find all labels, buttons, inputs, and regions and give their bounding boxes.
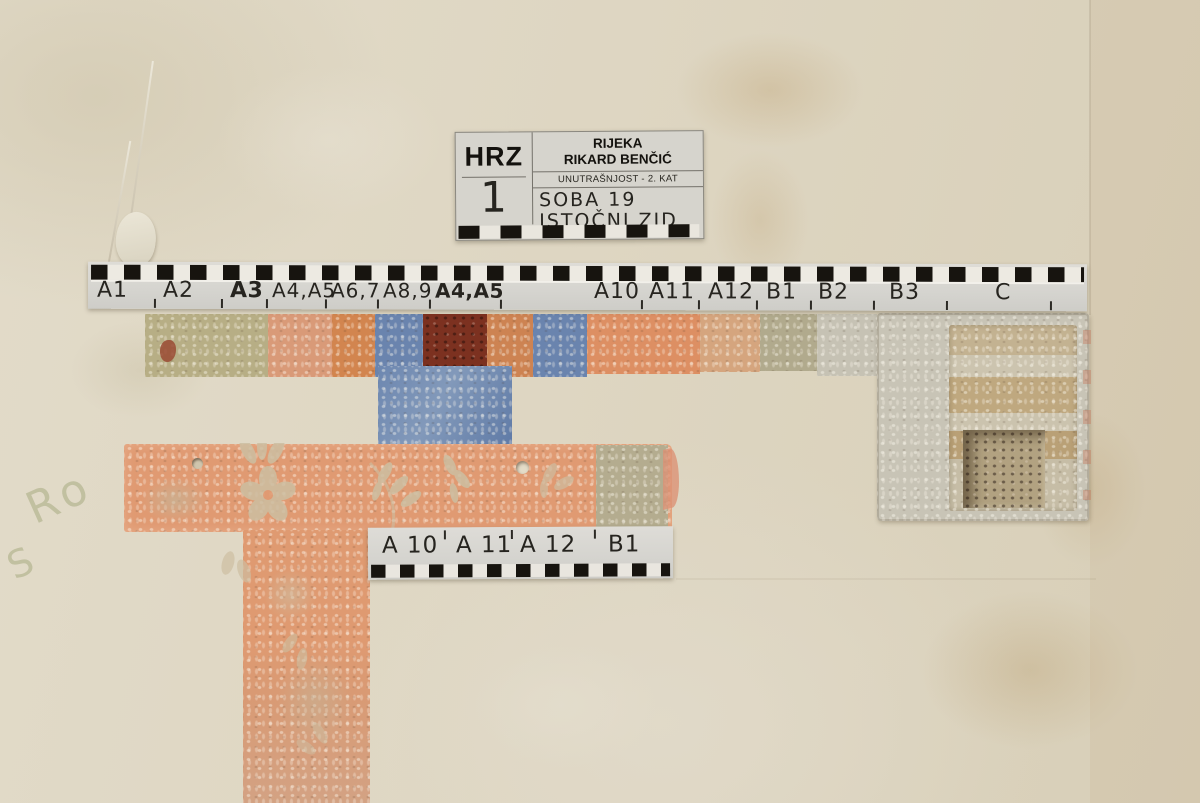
sample-patch-blue-2 bbox=[533, 314, 587, 377]
sample-patch-blue-large bbox=[378, 366, 512, 448]
scale-label-a4a5-bold: A4,A5 bbox=[435, 279, 504, 303]
nail-hole bbox=[192, 458, 203, 469]
lower-label-a10: A 10 bbox=[382, 532, 438, 558]
lower-scale-bar: A 10 A 11 A 12 B1 bbox=[368, 526, 673, 580]
tick-mark bbox=[810, 301, 812, 310]
scale-label-a3: A3 bbox=[230, 278, 263, 303]
wallpaper-band-grey-end bbox=[596, 445, 668, 531]
tick-mark bbox=[698, 300, 700, 309]
site-name: RIJEKA bbox=[533, 135, 703, 152]
tick-mark bbox=[266, 299, 268, 308]
card-scale-checker bbox=[458, 224, 699, 239]
tick-mark bbox=[641, 300, 643, 309]
tick-mark bbox=[444, 530, 446, 539]
scale-label-a11: A11 bbox=[649, 279, 695, 304]
lower-label-a11: A 11 bbox=[456, 532, 512, 558]
label-card: HRZ 1 RIJEKA RIKARD BENČIĆ UNUTRAŠNJOST … bbox=[455, 130, 705, 241]
building-name: RIKARD BENČIĆ bbox=[533, 151, 703, 168]
plaster-seam bbox=[1090, 0, 1200, 803]
tick-mark bbox=[221, 299, 223, 308]
tick-mark bbox=[154, 299, 156, 308]
plaster-pink-fleck bbox=[1083, 330, 1091, 500]
tick-mark bbox=[429, 300, 431, 309]
tick-mark bbox=[325, 299, 327, 308]
sample-patch-salmon bbox=[268, 314, 332, 377]
label-card-left-column: HRZ 1 bbox=[456, 132, 534, 225]
probe-number: 1 bbox=[456, 174, 532, 221]
wall-stain bbox=[180, 40, 480, 240]
scale-label-a2: A2 bbox=[163, 278, 194, 303]
wallpaper-torn-edge bbox=[663, 446, 679, 510]
lower-label-a12: A 12 bbox=[520, 532, 576, 558]
sample-patch-orange bbox=[332, 314, 375, 377]
scale-label-b2: B2 bbox=[818, 280, 849, 305]
scale-label-a1: A1 bbox=[97, 278, 128, 303]
wallpaper-worn bbox=[130, 470, 220, 530]
wallpaper-worn bbox=[265, 640, 365, 760]
label-card-right-column: RIJEKA RIKARD BENČIĆ UNUTRAŠNJOST - 2. K… bbox=[533, 131, 704, 224]
wall-stain bbox=[430, 620, 690, 790]
tick-mark bbox=[756, 300, 758, 309]
sample-patch-salmon-green bbox=[700, 314, 760, 372]
tick-mark bbox=[377, 299, 379, 308]
tick-mark bbox=[873, 301, 875, 310]
sample-patch-orange-patterned bbox=[587, 314, 700, 374]
sample-patch-plaster bbox=[817, 314, 877, 376]
lower-label-b1: B1 bbox=[608, 531, 641, 557]
scale-label-a12: A12 bbox=[708, 279, 754, 304]
main-scale-bar: A1 A2 A3 A4,A5 A6,7 A8,9 A4,A5 A10 A11 A… bbox=[88, 262, 1087, 312]
sample-patch-grey-green bbox=[760, 314, 817, 371]
graffiti-text: Ro bbox=[19, 460, 101, 534]
tick-mark bbox=[1050, 301, 1052, 310]
lower-scale-checker bbox=[371, 563, 670, 578]
tick-mark bbox=[946, 301, 948, 310]
graffiti-text2: S bbox=[0, 536, 45, 588]
tick-mark bbox=[500, 300, 502, 309]
nail-hole bbox=[516, 461, 529, 474]
room-line: SOBA 19 bbox=[533, 189, 703, 211]
plaster-seam bbox=[676, 578, 1096, 580]
graffiti-line2: S bbox=[0, 536, 45, 588]
tick-mark bbox=[511, 530, 513, 539]
wallpaper-worn bbox=[255, 560, 325, 630]
brick-recess bbox=[963, 430, 1045, 508]
graffiti-line1: Ro bbox=[19, 460, 101, 534]
org-code: HRZ bbox=[456, 141, 532, 173]
scale-label-b3: B3 bbox=[889, 280, 920, 305]
location-line: UNUTRAŠNJOST - 2. KAT bbox=[533, 171, 703, 187]
scale-label-b1: B1 bbox=[766, 279, 797, 304]
scale-label-a89: A8,9 bbox=[383, 278, 433, 302]
tick-mark bbox=[594, 530, 596, 539]
tape-scrap bbox=[112, 209, 161, 269]
scale-label-c: C bbox=[995, 280, 1011, 305]
wall-photo: Ro S bbox=[0, 0, 1200, 803]
scale-label-a10: A10 bbox=[594, 279, 640, 304]
scale-label-a67: A6,7 bbox=[331, 278, 381, 302]
